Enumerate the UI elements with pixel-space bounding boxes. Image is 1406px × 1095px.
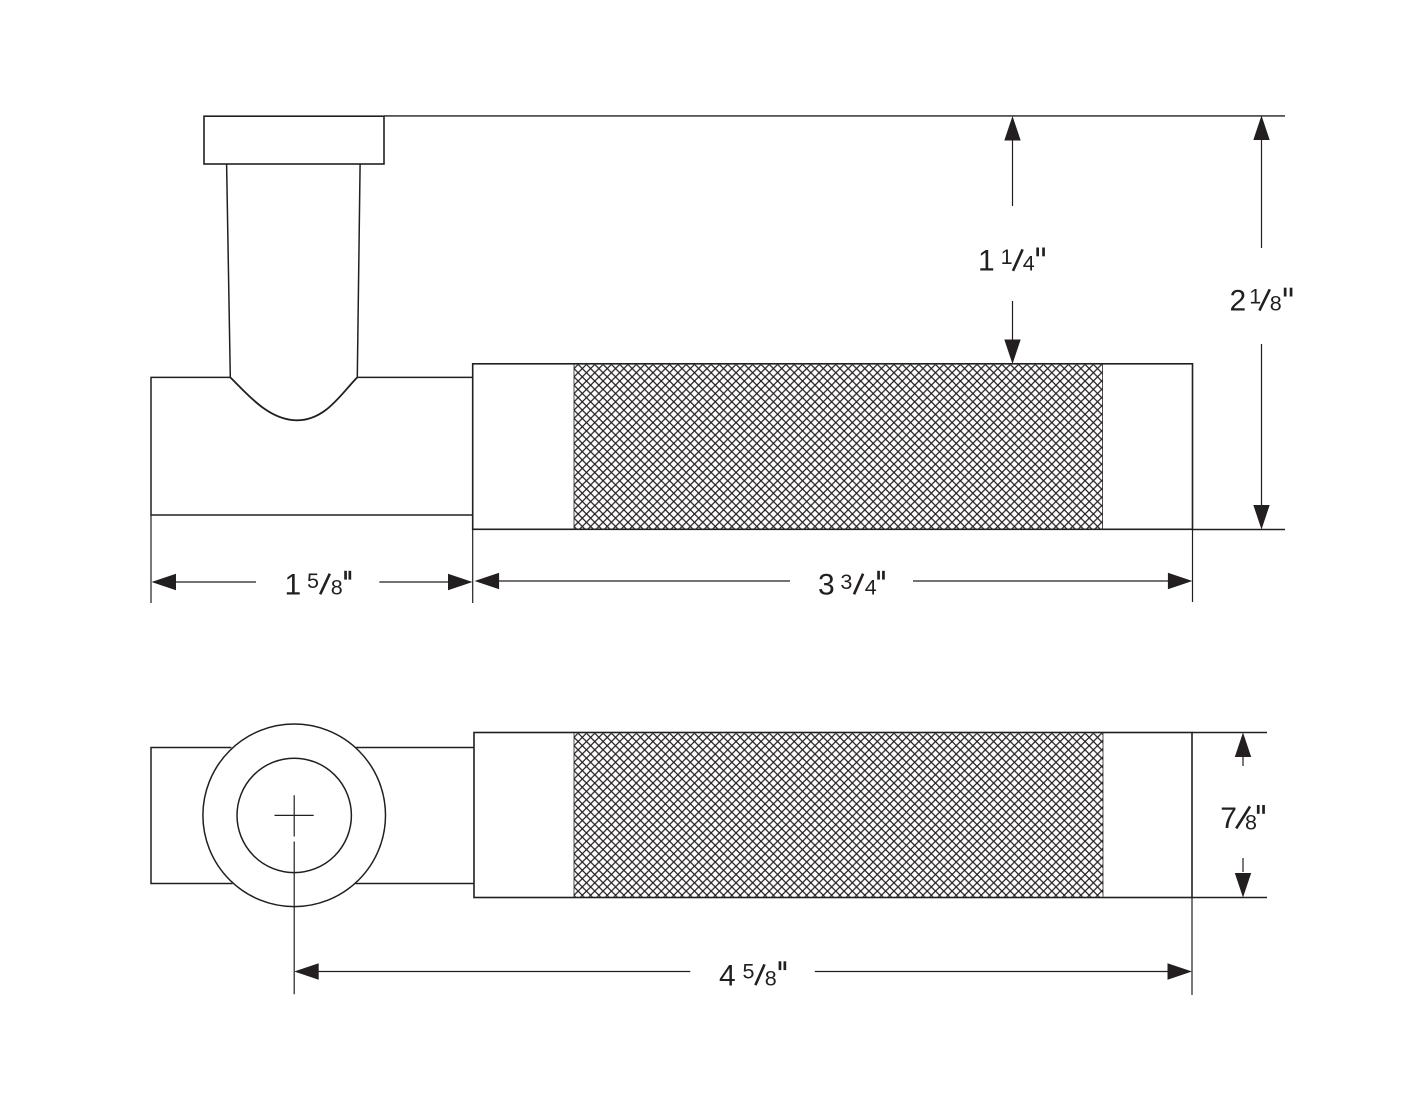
svg-text:8: 8 <box>765 966 777 990</box>
svg-text:1: 1 <box>978 245 995 278</box>
svg-text:3: 3 <box>818 569 835 602</box>
svg-text:4: 4 <box>1023 252 1035 276</box>
svg-text:8: 8 <box>1245 811 1257 835</box>
svg-text:4: 4 <box>719 959 736 992</box>
svg-text:2: 2 <box>1230 285 1247 318</box>
svg-text:1: 1 <box>285 569 302 602</box>
svg-text:8: 8 <box>331 576 343 600</box>
svg-text:8: 8 <box>1270 292 1282 316</box>
svg-text:5: 5 <box>307 569 319 593</box>
svg-text:7: 7 <box>1220 802 1237 835</box>
svg-text:3: 3 <box>840 570 852 594</box>
svg-text:1: 1 <box>1249 285 1261 309</box>
svg-text:4: 4 <box>865 576 877 600</box>
svg-text:5: 5 <box>743 960 755 984</box>
svg-text:1: 1 <box>1001 245 1013 269</box>
